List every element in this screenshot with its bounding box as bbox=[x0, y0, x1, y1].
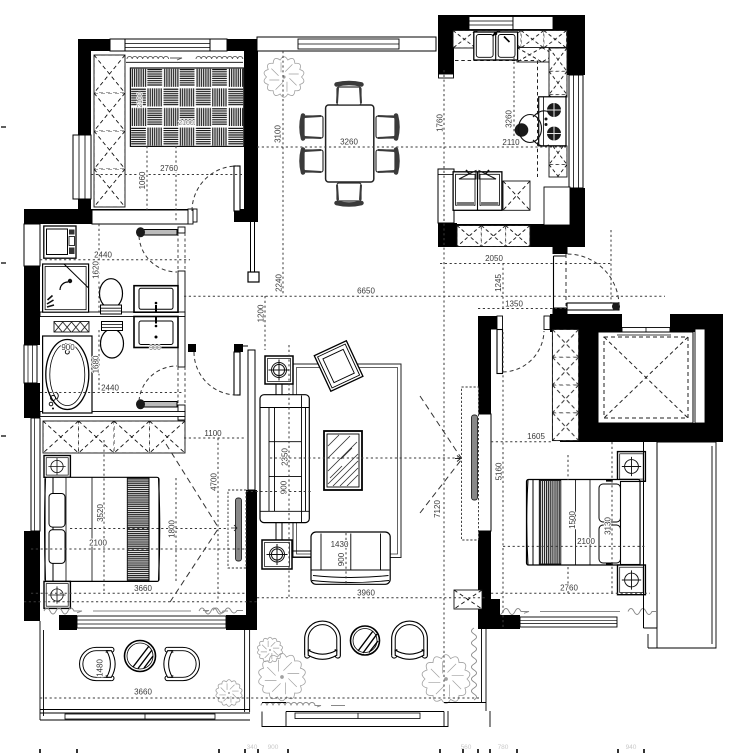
svg-text:1060: 1060 bbox=[138, 171, 147, 189]
svg-text:3660: 3660 bbox=[134, 584, 152, 593]
svg-text:340: 340 bbox=[247, 744, 258, 751]
svg-text:1605: 1605 bbox=[527, 432, 545, 441]
svg-text:900: 900 bbox=[337, 552, 346, 566]
svg-text:900: 900 bbox=[149, 345, 161, 352]
svg-text:7120: 7120 bbox=[433, 500, 442, 518]
svg-text:1245: 1245 bbox=[494, 274, 503, 292]
svg-text:2760: 2760 bbox=[560, 584, 578, 593]
svg-text:2110: 2110 bbox=[502, 138, 520, 147]
svg-text:2050: 2050 bbox=[485, 254, 503, 263]
svg-text:1620: 1620 bbox=[92, 261, 101, 279]
svg-text:900: 900 bbox=[280, 480, 289, 494]
svg-text:900: 900 bbox=[61, 343, 75, 352]
svg-text:2760: 2760 bbox=[160, 164, 178, 173]
svg-text:2440: 2440 bbox=[101, 384, 119, 393]
svg-text:1350: 1350 bbox=[505, 300, 523, 309]
svg-text:3260: 3260 bbox=[340, 138, 358, 147]
svg-text:1760: 1760 bbox=[436, 114, 445, 132]
svg-text:2100: 2100 bbox=[89, 539, 107, 548]
svg-text:3960: 3960 bbox=[357, 589, 375, 598]
svg-text:1680: 1680 bbox=[92, 355, 101, 373]
svg-text:1200: 1200 bbox=[257, 304, 266, 322]
svg-text:1800: 1800 bbox=[168, 520, 177, 538]
svg-text:900: 900 bbox=[268, 744, 279, 751]
svg-text:2100: 2100 bbox=[137, 92, 144, 108]
svg-text:2100: 2100 bbox=[178, 120, 194, 127]
svg-text:3260: 3260 bbox=[505, 110, 514, 128]
svg-text:940: 940 bbox=[626, 744, 637, 751]
svg-text:560: 560 bbox=[461, 744, 472, 751]
svg-text:3130: 3130 bbox=[604, 517, 613, 535]
svg-text:1480: 1480 bbox=[96, 659, 105, 677]
svg-text:780: 780 bbox=[498, 744, 509, 751]
svg-text:4700: 4700 bbox=[210, 473, 219, 491]
svg-text:2440: 2440 bbox=[94, 251, 112, 260]
svg-text:1100: 1100 bbox=[204, 429, 222, 438]
svg-text:2100: 2100 bbox=[577, 537, 595, 546]
svg-text:3520: 3520 bbox=[96, 504, 105, 522]
svg-text:3100: 3100 bbox=[274, 125, 283, 143]
svg-text:6650: 6650 bbox=[357, 287, 375, 296]
svg-text:1500: 1500 bbox=[568, 511, 577, 529]
svg-text:2240: 2240 bbox=[275, 274, 284, 292]
svg-text:5160: 5160 bbox=[495, 462, 504, 480]
svg-text:3660: 3660 bbox=[134, 688, 152, 697]
svg-text:2350: 2350 bbox=[281, 448, 290, 466]
svg-text:1430: 1430 bbox=[331, 540, 349, 549]
